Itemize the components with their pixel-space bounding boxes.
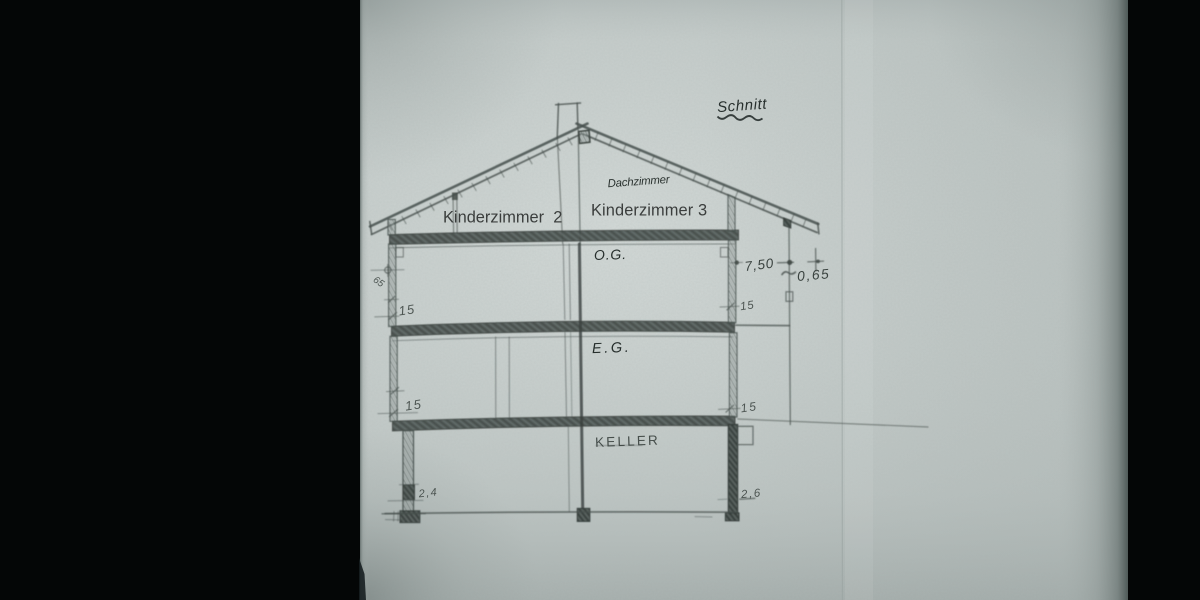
- svg-text:15: 15: [739, 299, 755, 313]
- svg-text:15: 15: [740, 399, 759, 415]
- svg-text:15: 15: [404, 396, 423, 413]
- svg-text:E.G.: E.G.: [592, 340, 632, 357]
- svg-text:0,65: 0,65: [797, 266, 831, 284]
- svg-text:Kinderzimmer 2: Kinderzimmer 2: [443, 209, 562, 227]
- svg-text:KELLER: KELLER: [595, 433, 660, 450]
- svg-text:Kinderzimmer 3: Kinderzimmer 3: [591, 202, 707, 220]
- svg-text:2,4: 2,4: [417, 486, 439, 500]
- svg-text:15: 15: [398, 301, 417, 318]
- svg-text:2,6: 2,6: [740, 487, 763, 501]
- svg-text:Schnitt: Schnitt: [717, 96, 768, 116]
- svg-text:O.G.: O.G.: [594, 246, 627, 263]
